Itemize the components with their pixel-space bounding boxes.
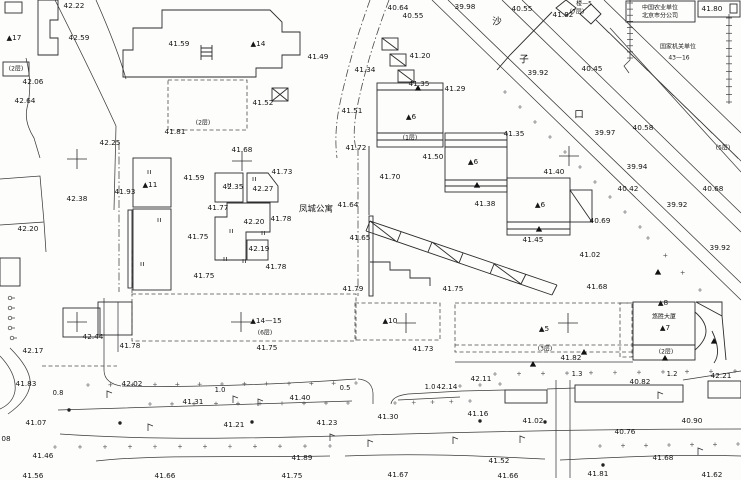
elevation-label: 41.68: [653, 453, 674, 462]
survey-dot-icon: [258, 401, 262, 405]
elevation-label: 42.20: [18, 224, 39, 233]
survey-dot-icon: [128, 445, 132, 449]
hatch-tick: [635, 58, 648, 71]
survey-dot-icon: [565, 371, 569, 375]
elevation-label: 39.92: [667, 200, 688, 209]
place-name-label: 悠胜大厦: [652, 313, 676, 321]
survey-dot-icon: [431, 400, 435, 404]
elevation-label: 08: [1, 434, 11, 443]
elevation-label: 41.59: [184, 173, 205, 182]
elevation-label: 41.75: [443, 284, 464, 293]
door-tick-icon: [230, 229, 233, 233]
elevation-label: 41.35: [504, 129, 525, 138]
elevation-label: 41.29: [445, 84, 466, 93]
street-lamp-icon: [453, 437, 458, 444]
elevation-label: 41.68: [587, 282, 608, 291]
survey-dot-icon: [203, 444, 207, 448]
elevation-label: 41.72: [346, 143, 367, 152]
survey-dot-icon: [253, 444, 257, 448]
survey-dot-icon: [563, 150, 567, 154]
steps: [370, 262, 430, 286]
survey-dot-icon: [548, 135, 552, 139]
barrier-box-diag: [390, 54, 406, 66]
elevation-label: 41.65: [350, 233, 371, 242]
survey-dot-icon: [458, 384, 462, 388]
building-4217-b: [98, 302, 132, 335]
floor-count-label: (6层): [258, 330, 273, 337]
elevation-label: 41.66: [155, 471, 176, 480]
pole-icon: [118, 421, 121, 424]
fence-post-icon: [10, 336, 14, 340]
survey-dot-icon: [593, 180, 597, 184]
survey-dot-icon: [667, 443, 671, 447]
road-edge: [55, 0, 116, 126]
elevation-label: 40.42: [618, 184, 639, 193]
boundary-line: [0, 176, 46, 252]
survey-dot-icon: [449, 400, 453, 404]
survey-dot-icon: [354, 381, 358, 385]
heavy-wall: [369, 216, 373, 296]
road-width-label: 1.2: [667, 370, 678, 378]
elevation-label: 41.68: [232, 145, 253, 154]
elevation-label: 41.77: [208, 203, 229, 212]
grid-cross-icon: [558, 313, 578, 333]
survey-dot-icon: [685, 370, 689, 374]
hatched-wall: [505, 390, 547, 403]
building-10-outline: [355, 303, 440, 340]
place-name-label: 口: [574, 110, 584, 121]
street-lamp-icon: [233, 396, 238, 403]
hatch-tick: [596, 20, 609, 33]
floor-count-label: (2层): [196, 120, 211, 127]
street-lamp-icon: [658, 392, 663, 399]
fence-post-icon: [8, 306, 12, 310]
elevation-label: 41.64: [338, 200, 359, 209]
survey-dot-icon: [178, 445, 182, 449]
elevation-label: 41.16: [468, 409, 489, 418]
elevation-label: 41.07: [26, 418, 47, 427]
elevation-label: 42.19: [249, 244, 270, 253]
elevation-label: 42.22: [64, 1, 85, 10]
pole-icon: [67, 408, 70, 411]
survey-dot-icon: [170, 402, 174, 406]
pole-icon: [543, 420, 546, 423]
fence-post-icon: [8, 296, 12, 300]
building-label: ▲8: [658, 298, 669, 307]
survey-dot-icon: [393, 401, 397, 405]
elevation-label: 42.27: [253, 184, 274, 193]
elevation-label: 41.78: [271, 214, 292, 223]
elevation-label: 42.17: [23, 346, 44, 355]
elevation-label: 42.06: [23, 77, 44, 86]
elevation-label: 42.64: [15, 96, 36, 105]
elevation-label: 40.55: [512, 4, 533, 13]
survey-dot-icon: [638, 225, 642, 229]
elevation-label: 41.59: [169, 39, 190, 48]
survey-dot-icon: [86, 383, 90, 387]
street-lamp-icon: [258, 399, 263, 406]
survey-dot-icon: [228, 444, 232, 448]
small-box: [5, 2, 22, 13]
survey-dot-icon: [518, 105, 522, 109]
elevation-label: 42.02: [122, 379, 143, 388]
place-name-label: 北京市分公司: [642, 12, 678, 20]
elevation-label: 42.11: [471, 374, 492, 383]
grid-cross-icon: [396, 313, 416, 333]
elevation-label: 41.49: [308, 52, 329, 61]
survey-map: 42.2240.6440.5539.9840.5541.82楼—5(7层)中国农…: [0, 0, 741, 480]
place-name-label: 子: [519, 55, 529, 66]
road-edge: [556, 380, 570, 478]
hatch-tick: [699, 120, 712, 133]
hatch-tick: [661, 83, 674, 96]
floor-count-label: 楼—5: [576, 0, 592, 8]
survey-dot-icon: [265, 382, 269, 386]
survey-dot-icon: [280, 401, 284, 405]
pole-icon: [250, 420, 253, 423]
road-width-label: 1.0: [425, 383, 436, 391]
building-14-15-outline: [132, 294, 356, 341]
street-lamp-icon: [520, 436, 525, 443]
elevation-label: 41.52: [253, 98, 274, 107]
label-box-4180-inner: [730, 4, 737, 13]
elevation-label: 40.68: [703, 184, 724, 193]
building-label: ▲6: [468, 157, 479, 166]
survey-dot-icon: [346, 401, 350, 405]
grid-cross-icon: [232, 151, 252, 171]
elevation-label: 41.73: [272, 167, 293, 176]
building-label: ▲10: [383, 316, 398, 325]
building-edge-right: [708, 381, 741, 398]
elevation-label: 41.82: [561, 353, 582, 362]
stairs-icon: [201, 45, 212, 60]
survey-dot-icon: [681, 271, 685, 275]
place-name-label: 沙: [492, 17, 502, 28]
survey-dot-icon: [623, 210, 627, 214]
survey-dot-icon: [78, 445, 82, 449]
survey-dot-icon: [148, 402, 152, 406]
elevation-label: 40.90: [682, 416, 703, 425]
hatch-tick: [673, 95, 686, 108]
barrier-box-diag: [382, 38, 398, 50]
building-7-corner: [696, 302, 722, 316]
utility-box-cross: [272, 88, 288, 101]
survey-dot-icon: [690, 443, 694, 447]
road-curve: [0, 356, 15, 409]
elevation-label: 39.94: [627, 162, 648, 171]
door-tick-icon: [141, 262, 144, 266]
elevation-label: 41.45: [523, 235, 544, 244]
pole-icon: [601, 463, 604, 466]
survey-dot-icon: [646, 236, 650, 240]
survey-dot-icon: [613, 371, 617, 375]
elevation-label: 41.83: [16, 379, 37, 388]
elevation-label: 40.82: [630, 377, 651, 386]
building-14: [123, 10, 300, 77]
floor-count-label: (7层): [570, 9, 585, 16]
elevation-label: 42.59: [69, 33, 90, 42]
building-label: ▲6: [535, 200, 546, 209]
survey-dot-icon: [468, 399, 472, 403]
elevation-label: 41.80: [702, 4, 723, 13]
survey-dot-icon: [478, 383, 482, 387]
hatched-wall: [575, 385, 683, 402]
survey-dot-icon: [328, 444, 332, 448]
boundary-line: [26, 58, 40, 158]
elevation-label: 39.97: [595, 128, 616, 137]
elevation-label: 41.35: [409, 79, 430, 88]
elevation-label: 41.66: [498, 471, 519, 480]
elevation-label: 41.75: [188, 232, 209, 241]
survey-dot-icon: [736, 442, 740, 446]
elevation-label: 41.78: [120, 341, 141, 350]
street-lamp-icon: [107, 391, 112, 398]
road-width-label: 0.8: [53, 389, 64, 397]
elevation-label: 40.55: [403, 11, 424, 20]
survey-dot-icon: [153, 383, 157, 387]
door-tick-icon: [253, 177, 256, 181]
road-edge: [104, 298, 121, 386]
elevation-label: 40.76: [615, 427, 636, 436]
survey-dot-icon: [412, 401, 416, 405]
survey-dot-icon: [637, 370, 641, 374]
pole-icon: [478, 419, 481, 422]
elevation-label: 41.40: [290, 393, 311, 402]
street-lamp-icon: [330, 434, 335, 441]
building-label: ▲6: [406, 112, 417, 121]
heavy-wall: [128, 210, 132, 288]
elevation-label: 39.92: [528, 68, 549, 77]
street-lamp-icon: [368, 440, 373, 447]
door-tick-icon: [158, 218, 161, 222]
elevation-label: 42.14: [437, 382, 458, 391]
road-edge: [502, 0, 741, 232]
elevation-label: 41.78: [266, 262, 287, 271]
survey-dot-icon: [713, 442, 717, 446]
elevation-label: 40.45: [582, 64, 603, 73]
survey-dot-icon: [108, 383, 112, 387]
place-name-label: 国家机关单位: [660, 43, 696, 51]
survey-dot-icon: [53, 445, 57, 449]
building-17: [38, 0, 58, 55]
survey-dot-icon: [608, 195, 612, 199]
survey-dot-icon: [644, 443, 648, 447]
place-name-label: 凤城公寓: [299, 204, 333, 215]
survey-dot-icon: [236, 402, 240, 406]
entrance-mark-icon: [474, 182, 480, 188]
survey-dot-icon: [698, 288, 702, 292]
elevation-label: 41.51: [342, 106, 363, 115]
floor-count-label: (3层): [538, 346, 553, 353]
elevation-label: 41.38: [475, 199, 496, 208]
elevation-label: 41.67: [388, 470, 409, 479]
elevation-label: 41.50: [423, 152, 444, 161]
elevation-label: 40.58: [633, 123, 654, 132]
elevation-label: 42.21: [711, 371, 732, 380]
place-name-label: 43—16: [668, 55, 689, 62]
elevation-label: 41.40: [544, 167, 565, 176]
building-7-side-strip: [620, 303, 632, 357]
building-label: ▲5: [539, 324, 549, 333]
floor-count-label: (2层): [9, 66, 24, 73]
floor-count-label: (1层): [403, 135, 418, 142]
grid-cross-icon: [559, 146, 579, 166]
survey-dot-icon: [303, 444, 307, 448]
elevation-label: 41.23: [317, 418, 338, 427]
elevation-label: 41.73: [413, 344, 434, 353]
elevation-label: 41.62: [702, 470, 723, 479]
survey-dot-icon: [153, 445, 157, 449]
survey-dot-icon: [578, 165, 582, 169]
elevation-label: 41.21: [224, 420, 245, 429]
building-label: ▲11: [143, 180, 158, 189]
elevation-label: 42.38: [67, 194, 88, 203]
elevation-label: 41.81: [588, 469, 609, 478]
labels-layer: 42.2240.6440.5539.9840.5541.82楼—5(7层)中国农…: [1, 0, 731, 480]
building-label: ▲14—15: [250, 316, 281, 325]
road-lane-line: [522, 0, 741, 213]
elevation-label: 41.79: [343, 284, 364, 293]
hatch-tick: [648, 70, 661, 83]
building-11-south: [133, 209, 171, 290]
survey-dot-icon: [663, 253, 667, 257]
survey-dot-icon: [287, 382, 291, 386]
elevation-label: 40.69: [590, 216, 611, 225]
entrance-mark-icon: [655, 269, 661, 275]
elevation-label: 41.02: [580, 250, 601, 259]
survey-dot-icon: [198, 382, 202, 386]
street-lamp-icon: [698, 448, 703, 455]
elevation-label: 41.75: [257, 343, 278, 352]
survey-dot-icon: [332, 381, 336, 385]
floor-count-label: (5层): [716, 145, 731, 152]
elevation-label: 41.02: [523, 416, 544, 425]
shed: [0, 258, 20, 286]
survey-dot-icon: [103, 445, 107, 449]
elevation-label: 41.30: [378, 412, 399, 421]
elevation-label: 41.93: [115, 187, 136, 196]
planned-road-line: [336, 0, 370, 158]
entrance-mark-icon: [662, 355, 668, 361]
road-width-label: 1.0: [215, 386, 226, 394]
fence-post-icon: [8, 326, 12, 330]
elevation-label: 41.56: [23, 471, 44, 480]
road-width-label: 0.5: [340, 384, 351, 392]
survey-dot-icon: [661, 370, 665, 374]
elevation-label: 42.20: [244, 217, 265, 226]
elevation-label: 39.92: [710, 243, 731, 252]
elevation-label: 41.34: [355, 65, 376, 74]
road-edge: [96, 455, 741, 461]
elevation-label: 41.81: [165, 127, 186, 136]
elevation-label: 42.35: [223, 182, 244, 191]
elevation-label: 41.75: [282, 471, 303, 480]
survey-dot-icon: [503, 90, 507, 94]
road-edge: [448, 0, 741, 283]
grid-cross-icon: [67, 312, 87, 332]
survey-dot-icon: [589, 371, 593, 375]
elevation-label: 41.70: [380, 172, 401, 181]
elevation-label: 41.52: [489, 456, 510, 465]
fence-post-icon: [8, 316, 12, 320]
elevation-label: 42.44: [83, 332, 104, 341]
building-label: ▲17: [7, 33, 22, 42]
road-edge: [60, 429, 741, 438]
road-edge: [96, 0, 126, 79]
building-label: ▲14: [251, 39, 266, 48]
place-name-label: 中国农业单位: [642, 4, 678, 12]
elevation-label: 41.89: [292, 453, 313, 462]
survey-dot-icon: [278, 444, 282, 448]
floor-count-label: (2层): [659, 349, 674, 356]
door-tick-icon: [148, 170, 151, 174]
survey-dot-icon: [533, 120, 537, 124]
elevation-label: 41.31: [183, 397, 204, 406]
survey-dot-icon: [493, 372, 497, 376]
elevation-label: 41.46: [33, 451, 54, 460]
survey-dot-icon: [541, 371, 545, 375]
building-7-arc: [695, 312, 706, 350]
street-lamp-icon: [148, 424, 153, 431]
planned-road-line: [354, 0, 389, 148]
building-label: ▲7: [660, 323, 671, 332]
fence-ladder: [624, 0, 630, 73]
elevation-label: 39.98: [455, 2, 476, 11]
grid-cross-icon: [231, 312, 251, 332]
elevation-label: 41.20: [410, 51, 431, 60]
survey-dot-icon: [621, 444, 625, 448]
survey-dot-icon: [498, 382, 502, 386]
road-width-label: 1.3: [572, 370, 583, 378]
survey-dot-icon: [517, 372, 521, 376]
elevation-label: 41.75: [194, 271, 215, 280]
elevation-label: 42.25: [100, 138, 121, 147]
survey-dot-icon: [598, 444, 602, 448]
grid-cross-icon: [67, 149, 87, 169]
survey-dot-icon: [175, 382, 179, 386]
